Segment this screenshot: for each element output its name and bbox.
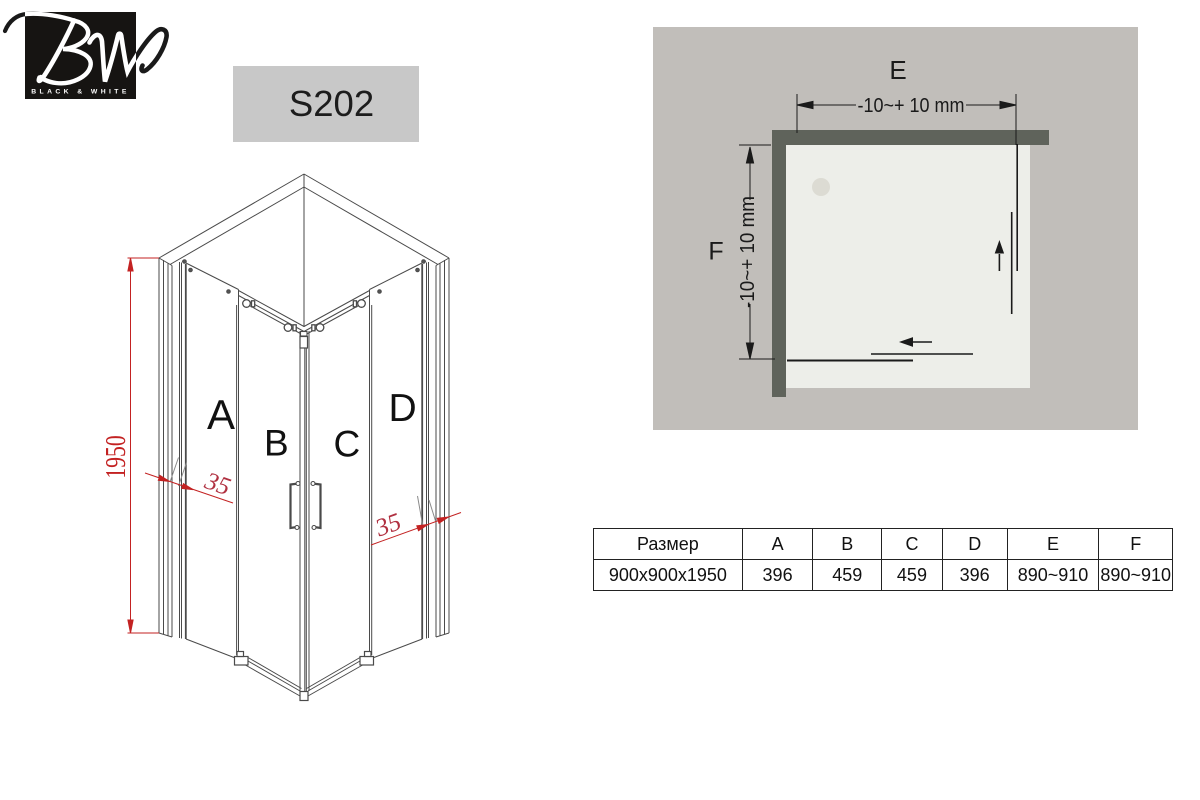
svg-text:-10~+ 10 mm: -10~+ 10 mm [858, 94, 965, 117]
svg-text:C: C [334, 424, 361, 465]
svg-text:E: E [889, 55, 906, 85]
svg-text:D: D [389, 387, 417, 430]
svg-text:1950: 1950 [100, 435, 132, 478]
svg-text:F: F [708, 238, 723, 266]
svg-text:35: 35 [200, 467, 233, 501]
svg-text:35: 35 [371, 508, 405, 542]
svg-text:-10~+ 10 mm: -10~+ 10 mm [737, 196, 759, 308]
svg-text:B: B [264, 423, 289, 464]
svg-text:A: A [207, 391, 235, 438]
